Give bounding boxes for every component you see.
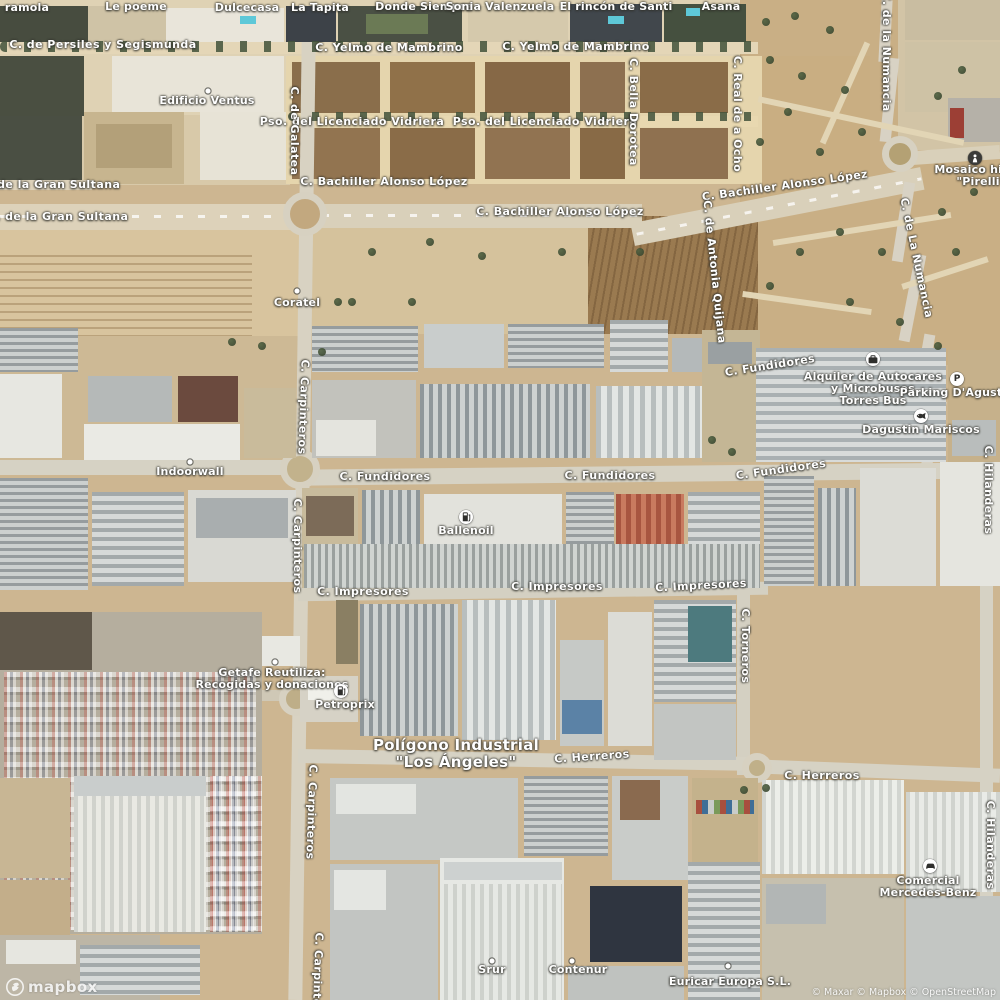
tree-icon	[816, 148, 824, 156]
terrain-patch	[950, 108, 964, 138]
poi-label-line: Asana	[702, 1, 741, 13]
tree-icon	[798, 72, 806, 80]
street-label-c-de-persiles-y-segismunda: C. de Persiles y Segismunda	[9, 39, 196, 51]
street-label-c-impresores: C. Impresores	[317, 586, 409, 598]
tree-icon	[952, 248, 960, 256]
terrain-patch	[590, 886, 682, 962]
poi-label-petroprix[interactable]: Petroprix	[315, 699, 375, 711]
place-label-pol-gono-industrial: Polígono Industrial"Los Ángeles"	[373, 737, 539, 771]
terrain-patch	[336, 784, 416, 814]
indoorwall-dot-marker[interactable]	[188, 460, 193, 465]
mapbox-logo-text: mapbox	[28, 978, 98, 996]
terrain-patch	[74, 796, 206, 932]
terrain-patch	[688, 606, 732, 662]
terrain-patch	[708, 342, 752, 364]
terrain-patch	[608, 612, 652, 746]
tree-icon	[334, 298, 342, 306]
poi-label-line: Ballenoil	[438, 525, 494, 537]
terrain-patch	[654, 704, 736, 760]
tree-icon	[836, 228, 844, 236]
street-label-pso-del-licenciado-vidriera: Pso. del Licenciado Vidriera	[453, 116, 638, 128]
terrain-patch	[508, 324, 604, 368]
street-label-c-bella-dorotea: C. Bella Dorotea	[627, 58, 639, 166]
tree-icon	[958, 66, 966, 74]
tree-icon	[938, 208, 946, 216]
poi-label-line: Sonia Valenzuela	[446, 1, 555, 13]
street-label-c-bachiller-alonso-l-pez: C. Bachiller Alonso López	[476, 206, 643, 218]
tree-icon	[766, 56, 774, 64]
poi-label-line: Recogidas y donaciones	[195, 679, 348, 691]
terrain-patch	[462, 600, 556, 740]
poi-label-indoorwall[interactable]: Indoorwall	[156, 466, 223, 478]
poi-label-mosaico-hist-r[interactable]: Mosaico histór"Pirelli"	[934, 164, 1000, 188]
poi-label-ramola[interactable]: ramola	[5, 2, 49, 14]
map-canvas[interactable]: C. de Persiles y SegismundaC. Yelmo de M…	[0, 0, 1000, 1000]
terrain-patch	[88, 376, 172, 422]
getafe-reutiliza-dot-marker[interactable]	[273, 660, 278, 665]
poi-label-edificio-ventus[interactable]: Edificio Ventus	[159, 95, 254, 107]
terrain-patch	[336, 600, 358, 664]
map-attribution[interactable]: © Maxar © Mapbox © OpenStreetMap	[812, 987, 996, 998]
terrain-patch	[580, 128, 625, 179]
terrain-patch	[882, 136, 918, 172]
poi-label-line: Le poeme	[105, 1, 167, 13]
poi-label-line: Petroprix	[315, 699, 375, 711]
terrain-patch	[96, 124, 172, 168]
tree-icon	[228, 338, 236, 346]
tree-icon	[258, 342, 266, 350]
poi-label-line: Dagustin Mariscos	[862, 424, 980, 436]
alquiler-de-autocares-bus-marker-icon[interactable]	[866, 352, 880, 366]
poi-label-comercial[interactable]: ComercialMercedes-Benz	[880, 875, 977, 899]
euricar-europa-s-l-dot-marker[interactable]	[726, 964, 731, 969]
poi-label-line: "Pirelli"	[934, 176, 1000, 188]
comercial-car-marker-icon[interactable]	[923, 859, 937, 873]
terrain-patch	[764, 476, 814, 586]
street-label-c-torneros: C. Torneros	[739, 609, 751, 684]
tree-icon	[766, 282, 774, 290]
street-label-c-de-la-gran-sultana: C. de la Gran Sultana	[0, 179, 120, 191]
poi-label-line: Indoorwall	[156, 466, 223, 478]
terrain-patch	[524, 776, 608, 856]
poi-label-dulcecasa[interactable]: Dulcecasa	[215, 2, 279, 14]
terrain-patch	[0, 328, 78, 372]
poi-label-asana[interactable]: Asana	[702, 1, 741, 13]
terrain-patch	[210, 776, 262, 932]
terrain-patch	[300, 226, 592, 334]
place-label-line: Polígono Industrial	[373, 737, 539, 754]
terrain-patch	[596, 386, 702, 458]
poi-label-le-poeme[interactable]: Le poeme	[105, 1, 167, 13]
street-label-c-de-galatea: C. de Galatea	[288, 87, 300, 176]
terrain-patch	[0, 612, 92, 670]
coratel-dot-marker[interactable]	[295, 289, 300, 294]
poi-label-ballenoil[interactable]: Ballenoil	[438, 525, 494, 537]
poi-label-la-tapita[interactable]: La Tapita	[291, 2, 349, 14]
street-label-c-de-la-gran-sultana: C. de la Gran Sultana	[0, 211, 128, 223]
tree-icon	[858, 128, 866, 136]
poi-label-line: Dulcecasa	[215, 2, 279, 14]
terrain-patch	[608, 16, 624, 24]
terrain-patch	[762, 780, 904, 874]
terrain-patch	[485, 62, 570, 113]
poi-label-line: Edificio Ventus	[159, 95, 254, 107]
tree-icon	[934, 342, 942, 350]
poi-label-euricar-europa-s-l[interactable]: Euricar Europa S.L.	[669, 976, 791, 988]
tree-icon	[558, 248, 566, 256]
poi-label-line: Contenur	[549, 964, 608, 976]
mapbox-logo[interactable]: mapbox	[6, 978, 98, 996]
tree-icon	[796, 248, 804, 256]
poi-label-line: El rincón de Santi	[560, 1, 673, 13]
terrain-patch	[424, 324, 504, 368]
terrain-patch	[444, 884, 562, 1000]
street-label-c-herreros: C. Herreros	[784, 770, 860, 782]
terrain-patch	[0, 778, 70, 878]
tree-icon	[762, 784, 770, 792]
terrain-patch	[283, 192, 327, 236]
terrain-patch	[84, 424, 240, 460]
terrain-patch	[6, 940, 76, 964]
terrain-patch	[0, 460, 300, 475]
poi-label-srur[interactable]: Srur	[478, 964, 505, 976]
tree-icon	[478, 252, 486, 260]
tree-icon	[318, 348, 326, 356]
terrain-patch	[316, 420, 376, 456]
tree-icon	[784, 108, 792, 116]
tree-icon	[896, 318, 904, 326]
terrain-patch	[640, 128, 728, 179]
tree-icon	[740, 786, 748, 794]
street-label-c-carpinteros: C. Carpinteros	[291, 498, 303, 593]
terrain-patch	[196, 498, 288, 538]
parking-d-agust-n-parking-marker-icon[interactable]: P	[950, 372, 964, 386]
street-label-c-de-la-numancia: C. de la Numancia	[880, 0, 892, 112]
street-label-c-bachiller-alonso-l-pez: C. Bachiller Alonso López	[300, 176, 467, 188]
poi-label-line: Mercedes-Benz	[880, 887, 977, 899]
ballenoil-fuel-marker-icon[interactable]	[459, 510, 473, 524]
street-label-c-impresores: C. Impresores	[511, 581, 603, 593]
street-label-c-carpinteros: C. Carpinteros	[309, 932, 324, 1000]
terrain-patch	[640, 62, 728, 113]
street-label-c-fundidores: C. Fundidores	[564, 470, 655, 482]
poi-label-el-rinc-n-de-santi[interactable]: El rincón de Santi	[560, 1, 673, 13]
terrain-patch	[696, 800, 754, 814]
terrain-patch	[766, 884, 826, 924]
poi-label-line: Euricar Europa S.L.	[669, 976, 791, 988]
place-label-line: "Los Ángeles"	[373, 754, 539, 771]
terrain-patch	[562, 700, 602, 734]
petroprix-fuel-marker-icon[interactable]	[334, 684, 348, 698]
poi-label-sonia-valenzuela[interactable]: Sonia Valenzuela	[446, 1, 555, 13]
terrain-patch	[0, 374, 62, 458]
terrain-patch	[686, 8, 700, 16]
terrain-patch	[906, 896, 1000, 1000]
terrain-patch	[178, 376, 238, 422]
street-label-c-hilanderas: C. Hilanderas	[984, 801, 996, 890]
parking-icon: P	[954, 374, 961, 384]
terrain-patch	[240, 16, 256, 24]
poi-label-line: Parking D'Agustín	[900, 387, 1000, 399]
terrain-patch	[620, 780, 660, 820]
terrain-patch	[244, 388, 296, 458]
poi-label-parking-d-agust-n[interactable]: Parking D'Agustín	[900, 387, 1000, 399]
street-label-c-carpinteros: C. Carpinteros	[303, 764, 318, 859]
terrain-patch	[390, 128, 475, 179]
tree-icon	[408, 298, 416, 306]
terrain-patch	[692, 778, 758, 862]
tree-icon	[878, 248, 886, 256]
tree-icon	[826, 26, 834, 34]
terrain-patch	[610, 320, 668, 372]
tree-icon	[846, 298, 854, 306]
terrain-patch	[306, 496, 354, 536]
poi-label-coratel[interactable]: Coratel	[274, 297, 320, 309]
poi-label-line: Srur	[478, 964, 505, 976]
street-label-c-carpinteros: C. Carpinteros	[295, 359, 310, 454]
tree-icon	[708, 436, 716, 444]
poi-label-contenur[interactable]: Contenur	[549, 964, 608, 976]
terrain-patch	[312, 326, 418, 372]
tree-icon	[934, 92, 942, 100]
terrain-patch	[580, 62, 625, 113]
terrain-patch	[360, 604, 458, 736]
tree-icon	[426, 238, 434, 246]
terrain-patch	[74, 776, 206, 796]
terrain-patch	[420, 384, 590, 458]
street-label-c-real-de-a-ocho: C. Real de a Ocho	[731, 56, 743, 172]
street-label-c-hilanderas: C. Hilanderas	[982, 446, 994, 535]
tree-icon	[368, 248, 376, 256]
terrain-patch	[0, 116, 82, 182]
terrain-patch	[444, 862, 562, 880]
terrain-patch	[485, 128, 570, 179]
terrain-patch	[92, 492, 184, 586]
terrain-patch	[818, 488, 856, 586]
terrain-patch	[905, 0, 1000, 40]
poi-label-getafe-reutiliza[interactable]: Getafe Reutiliza:Recogidas y donaciones	[195, 667, 348, 691]
terrain-patch	[334, 870, 386, 910]
terrain-patch	[860, 468, 936, 586]
terrain-patch	[0, 478, 88, 590]
tree-icon	[348, 298, 356, 306]
terrain-patch	[0, 56, 84, 116]
poi-label-line: La Tapita	[291, 2, 349, 14]
dagustin-mariscos-seafood-marker-icon[interactable]	[914, 409, 928, 423]
street-label-c-yelmo-de-mambrino: C. Yelmo de Mambrino	[315, 42, 463, 54]
poi-label-line: ramola	[5, 2, 49, 14]
poi-label-dagustin-mariscos[interactable]: Dagustin Mariscos	[862, 424, 980, 436]
street-label-c-fundidores: C. Fundidores	[339, 471, 430, 483]
terrain-patch	[80, 945, 200, 995]
tree-icon	[728, 448, 736, 456]
edificio-ventus-dot-marker[interactable]	[206, 89, 211, 94]
terrain-patch	[390, 62, 475, 113]
tree-icon	[762, 18, 770, 26]
poi-label-line: Coratel	[274, 297, 320, 309]
tree-icon	[756, 138, 764, 146]
tree-icon	[841, 86, 849, 94]
street-label-c-yelmo-de-mambrino: C. Yelmo de Mambrino	[502, 41, 650, 53]
terrain-patch	[672, 338, 702, 372]
tree-icon	[636, 248, 644, 256]
tree-icon	[970, 188, 978, 196]
terrain-patch	[366, 14, 428, 34]
tree-icon	[791, 12, 799, 20]
mapbox-logo-icon	[6, 978, 24, 996]
